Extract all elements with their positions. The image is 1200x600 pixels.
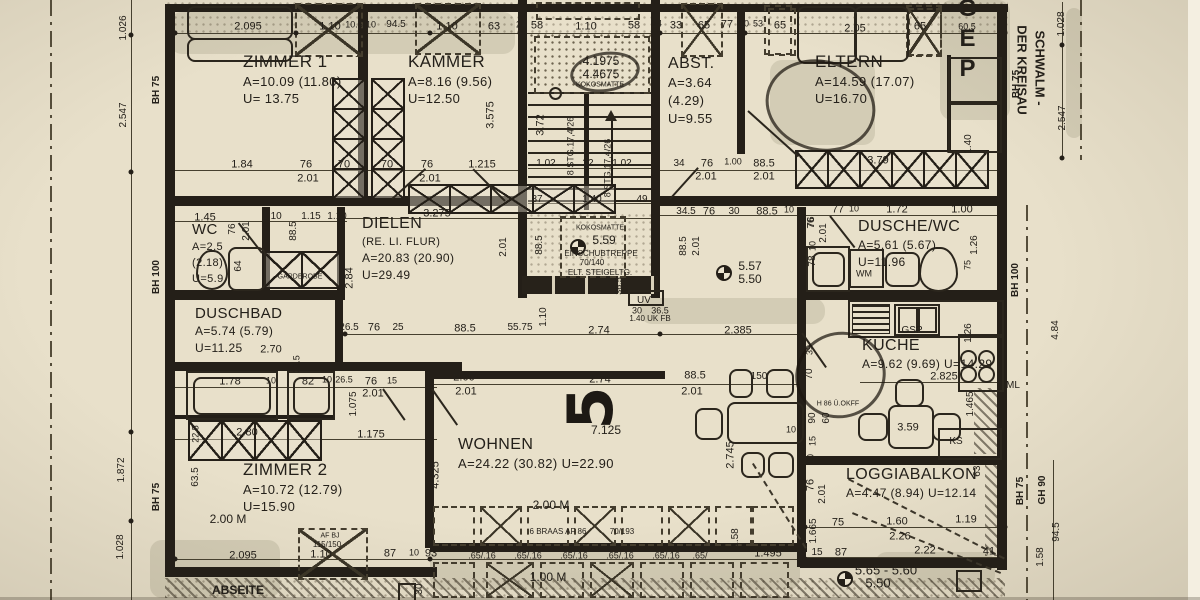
dimension-label: 1.10 [436,22,457,33]
dimension-label: 1.465 [966,391,976,416]
dimension-label: 30 [415,583,425,594]
room-area: A=5.74 (5.79) [195,325,282,339]
door-swing-line [431,388,458,425]
dimension-label: 10 [809,241,818,251]
dimension-label: 2.74 [588,326,609,337]
room-name: ZIMMER 1 [243,52,342,72]
dimension-node [1003,525,1008,530]
wall [165,362,462,371]
dimension-label: 2.01 [695,172,716,183]
annotation-label: GARDEROBE [278,274,323,281]
wardrobe-cell [334,170,364,198]
room-label: ZIMMER 2A=10.72 (12.79)U=15.90 [243,460,343,518]
dimension-label: 10 [366,21,376,30]
wardrobe-cell [265,253,303,287]
room-area: A=24.22 (30.82) U=22.90 [458,457,614,472]
fixture [895,379,924,407]
dimension-label: 2.01 [681,387,702,398]
dimension-label: 2.547 [119,102,129,127]
dimension-node [173,557,178,562]
dimension-label: BH 100 [1011,263,1021,297]
dimension-node [518,31,523,36]
dimension-label: .65/.16 [652,552,680,561]
boundary-line [50,0,52,600]
window-dashed [480,506,522,546]
dimension-label: 2.01 [499,237,509,256]
dimension-label: 63 [488,22,500,33]
level-label: 5.57 [738,260,761,272]
dimension-label: 2.74 [589,375,610,386]
fixture [852,304,890,334]
dimension-label: GH 90 [1038,476,1048,505]
fixture [727,402,804,444]
dimension-label: 53 [753,20,763,29]
room-name: DUSCHBAD [195,305,282,322]
room-name: WC [192,221,224,238]
dimension-label: 76 [701,159,713,170]
dimension-label: 1.872 [117,457,127,482]
wardrobe-crossbox [795,150,989,189]
room-area: (2.18) [192,257,224,270]
dimension-label: 150 [751,372,768,382]
dimension-label: 1.40 UK FB [629,315,670,323]
dimension-label: BH 75 [152,483,162,511]
dimension-label: 76 [703,207,715,218]
dimension-label: 1.78 [219,377,240,388]
dimension-label: 1.075 [349,391,359,416]
room-area: A=10.72 (12.79) [243,483,343,498]
dimension-label: 1.15 [301,212,320,222]
dimension-label: 88.5 [289,221,299,240]
dimension-label: 2.01 [819,223,829,242]
dimension-label: .65/.16 [606,552,634,561]
dimension-label: 1.10 [575,22,596,33]
dimension-label: 1.215 [468,160,496,171]
dimension-label: 10 [322,376,332,385]
dimension-label: 70 [338,160,350,171]
dimension-label: BH 75 [152,76,162,104]
dimension-label: 2.01 [419,174,440,185]
dimension-label: 76 [300,160,312,171]
dimension-label: 76 [806,479,817,491]
dimension-label: UV [637,296,651,306]
wardrobe-cell [893,152,925,187]
dimension-label: 88.5 [535,235,545,254]
room-area: U=11.96 [858,256,960,270]
dimension-label: 90 [808,412,818,423]
room-area: A=2.5 [192,241,224,254]
fixture [729,369,753,398]
dimension-label: 88.5 [679,236,689,255]
dimension-node [129,170,134,175]
window-dashed [433,562,475,598]
dimension-label: 3.79 [867,156,888,167]
dimension-label: BH 75 [1016,477,1026,505]
dimension-label: 4.325 [431,461,442,489]
dimension-label: 2.095 [234,22,262,33]
dimension-label: 65 [698,21,710,32]
wall [165,290,345,300]
dimension-label: 15 [387,377,397,386]
dimension-label: 10 [784,206,794,215]
room-area: (4.29) [668,94,714,109]
dimension-label: 1.72 [886,205,907,216]
annotation-label: ABSEITE [212,584,264,596]
dimension-label: BH 100 [152,260,162,294]
wardrobe-cell [451,186,492,212]
annotation-label: KS [949,437,962,447]
wardrobe-cell [829,152,861,187]
room-area: U=9.55 [668,112,714,127]
dimension-label: 1.00 [724,158,742,167]
dimension-label: 76 [368,323,380,334]
dimension-label: 8 STG.17,4/26 [604,139,613,198]
dimension-label: 87 [384,549,396,560]
window-dashed [536,2,640,20]
dimension-node [658,31,663,36]
dimension-label: 24 [516,21,526,30]
dimension-label: 34.5 [676,207,695,217]
wardrobe-cell [303,253,339,287]
dimension-label: 24 [652,20,662,29]
dimension-label: 1.10 [310,550,331,561]
wardrobe-cell [256,422,289,459]
dimension-label: 65 [914,22,926,33]
level-label: 5.50 [738,273,761,285]
dimension-label: 2.26 [889,532,910,543]
room-name: KAMMER [408,52,492,72]
dimension-label: 1.60 [886,517,907,528]
dimension-node [173,31,178,36]
room-area: U=5.9 [192,273,224,286]
room-label: WCA=2.5(2.18)U=5.9 [192,221,224,288]
annotation-label: 70/193 [610,528,634,536]
dimension-label: 76 [421,160,433,171]
level-mark-icon [716,265,732,281]
room-name: WOHNEN [458,436,614,454]
dimension-label: 1.19 [955,515,976,526]
dimension-label: 26.5 [339,323,358,333]
room-area: A=8.16 (9.56) [408,75,492,90]
wardrobe-crossbox [263,251,341,289]
room-label: DUSCHBADA=5.74 (5.79)U=11.25 [195,305,282,359]
dimension-label: 41 [983,547,995,558]
fixture [695,408,723,440]
dimension-label: 2.00 M [210,513,247,525]
annotation-label: ELT. STEIGELTG. [568,269,632,277]
dimension-label: 10.5 [345,21,363,30]
dimension-label: 88.5 [684,371,705,382]
dimension-label: 2.547 [1058,105,1068,130]
dimension-label: 2.01 [692,236,702,255]
window-dashed [668,506,710,546]
dimension-label: 1.00 M [530,571,567,583]
dimension-label: 2.05 [844,24,865,35]
window-dashed [433,506,475,546]
window-dashed [768,8,796,56]
window-dashed [486,562,534,598]
dimension-label: 2.00 M [533,499,570,511]
dimension-label: 2.01 [455,387,476,398]
door-swing-line [829,215,855,248]
wardrobe-cell [925,152,957,187]
dimension-label: 4.84 [1051,320,1061,339]
room-label: ABST.A=3.64(4.29)U=9.55 [668,55,714,130]
level-label: 5.59 [592,234,615,246]
dimension-label: 78 [808,255,818,266]
door-swing-line [382,388,405,420]
dimension-label: 30 [728,207,739,217]
dimension-label: 70 [381,160,393,171]
dimension-label: 10 [266,377,276,386]
dimension-label: 3.72 [536,114,547,135]
window-dashed [574,506,616,546]
room-name: KÜCHE [862,337,993,355]
dimension-node [743,31,748,36]
dimension-label: 2.01 [297,174,318,185]
wall [518,0,527,298]
dimension-label: .65/.16 [560,552,588,561]
dimension-label: 36.5 [293,355,302,373]
dimension-label: 26.5 [335,376,353,385]
window-dashed [527,506,569,546]
dimension-label: 75 [832,518,844,529]
boundary-line [1080,0,1082,160]
fixture [549,87,562,100]
fixture [858,413,888,441]
wall [651,0,660,298]
dimension-label: 8 STG.17,4/26 [567,117,576,176]
room-label: DUSCHE/WCA=5.61 (5.67)U=11.96 [858,218,960,273]
fixture [766,369,794,398]
fixture [956,570,982,592]
dimension-label: 49 [636,195,647,205]
stamp-text: SCHWALM - [1034,30,1047,105]
dimension-label: 7.125 [591,424,621,436]
dimension-label: 1.028 [116,534,126,559]
room-name: DUSCHE/WC [858,218,960,236]
dimension-label: 1.175 [357,430,385,441]
level-label: 5.50 [865,577,890,590]
annotation-label: KOKOSMATTE [576,225,624,232]
dimension-node [129,430,134,435]
dimension-label: 2.22 [914,546,935,557]
dimension-label: 2.385 [724,326,752,337]
dimension-label: 2.01 [753,172,774,183]
dimension-label: 37 [531,195,542,205]
annotation-label: 70/140 [580,259,604,267]
room-area: U=12.50 [408,92,492,107]
window-dashed [590,562,634,598]
level-mark-icon [837,571,853,587]
dimension-node [803,525,808,530]
window-dashed [640,562,684,598]
floorplan-photo: 5 2.0951.1010.51094.51.106324581.1058243… [0,0,1200,600]
fixture [938,428,1002,460]
fixture [768,452,794,478]
dimension-label: 1.58 [1036,547,1046,566]
room-area: A=20.83 (20.90) [362,252,454,266]
dimension-label: 77 [721,20,733,31]
room-area: A=5.61 (5.67) [858,239,960,253]
dimension-label: 10 [739,20,749,29]
dimension-label: 15 [809,436,818,446]
floorplan-drawing: 5 2.0951.1010.51094.51.106324581.1058243… [0,0,1200,600]
dimension-label: 2.095 [229,551,257,562]
annotation-label: AF BJ [320,533,339,540]
wardrobe-cell [797,152,829,187]
room-name: ZIMMER 2 [243,460,343,480]
room-area: U=29.49 [362,269,454,283]
dimension-node [803,557,808,562]
dimension-label: 34 [673,159,684,169]
dimension-label: 1.40 [582,195,601,205]
dimension-label: 1.58 [731,528,741,547]
dimension-label: 58 [628,21,640,32]
dimension-label: 82 [302,377,314,388]
dimension-label: 65 [774,21,786,32]
dimension-label: 1.10 [262,212,281,222]
dimension-label: 2.745 [726,441,737,469]
wardrobe-cell [373,110,403,140]
room-area: U= 13.75 [243,92,342,107]
dimension-node [129,519,134,524]
dimension-label: 1.026 [119,15,129,40]
room-name: LOGGIABALKON [846,466,977,484]
dimension-label: 1.028 [1057,11,1067,36]
dimension-label: 76 [228,223,238,234]
dimension-label: 1.26 [970,235,980,254]
boundary-line [1026,205,1028,600]
wardrobe-cell [289,422,320,459]
dimension-label: 1.10 [319,22,340,33]
dimension-node [428,31,433,36]
room-area: A=3.64 [668,76,714,91]
dimension-label: 25 [392,323,403,333]
dimension-label: 36.5 [615,277,624,295]
room-area: U=15.90 [243,500,343,515]
dimension-node [1060,156,1065,161]
dimension-label: 10 [409,549,419,558]
wardrobe-cell [334,110,364,140]
dimension-label: 2.01 [818,484,828,503]
room-label: ZIMMER 1A=10.09 (11.80)U= 13.75 [243,52,342,110]
dimension-label: 1.495 [754,549,782,560]
dimension-label: 22 [582,159,593,169]
dimension-label: 2.01 [242,221,252,240]
dimension-label: 1.10 [539,307,549,326]
room-name: ABST. [668,55,714,73]
dimension-label: 88.5 [454,324,475,335]
stamp-text: DER KREISAU [1016,25,1029,115]
room-label: WOHNENA=24.22 (30.82) U=22.90 [458,436,614,475]
dimension-label: 94.5 [1052,522,1062,541]
room-area: U=11.25 [195,342,282,356]
dimension-label: .65/.16 [514,552,542,561]
dimension-label: 77 [832,205,844,216]
dimension-label: 10 [807,454,816,464]
room-label: DIELEN(RE. LI. FLUR)A=20.83 (20.90)U=29.… [362,215,454,286]
annotation-label: GSP [901,326,922,336]
dimension-label: 1.10 [327,212,346,222]
dimension-label: 1.02 [612,159,631,169]
dimension-label: 76 [365,377,377,388]
dimension-node [658,332,663,337]
dimension-label: 88.5 [753,159,774,170]
room-name: DIELEN [362,215,454,233]
dimension-label: 1.84 [231,160,252,171]
wardrobe-cell [492,186,533,212]
dimension-label: 63.5 [191,467,201,486]
dimension-label: 3.59 [897,423,918,434]
dimension-label: 2.80 [236,428,257,439]
room-area: A=4.47 (8.94) U=12.14 [846,487,977,501]
stamp-text: GEP [955,0,979,85]
wardrobe-crossbox [371,78,405,200]
dimension-node [360,31,365,36]
window-dashed [690,562,734,598]
dimension-label: 2.01 [362,389,383,400]
dimension-label: 64 [234,260,244,271]
annotation-label: ML [1006,381,1020,391]
dimension-label: .65/ [692,552,707,561]
dimension-label: 94.5 [386,20,405,30]
room-area: (RE. LI. FLUR) [362,236,454,249]
dimension-label: 1.40 [964,134,974,153]
window-dashed [621,506,663,546]
dimension-node [129,33,134,38]
window-dashed [740,562,789,598]
dimension-label: 15 [811,548,822,558]
dimension-line [131,0,132,600]
dimension-label: 2.84 [345,267,356,288]
dimension-node [1060,43,1065,48]
dimension-label: 88.5 [756,207,777,218]
room-label: LOGGIABALKONA=4.47 (8.94) U=12.14 [846,466,977,504]
dimension-label: 22.5 [192,425,201,443]
annotation-label: 115/150 [313,541,341,549]
dimension-node [294,31,299,36]
dimension-label: .65/.16 [468,552,496,561]
dimension-label: 55.75 [507,323,532,333]
photo-edge [1188,0,1200,600]
wardrobe-cell [373,80,403,110]
dimension-label: 10 [786,426,796,435]
dimension-label: 76 [807,216,817,227]
annotation-label: 6 BRAAS AF 86 [530,528,587,536]
dimension-label: 75 [964,260,973,270]
room-label: KAMMERA=8.16 (9.56)U=12.50 [408,52,492,110]
dimension-label: 58 [531,21,543,32]
dimension-label: 1.00 [951,205,972,216]
fixture [948,103,1002,153]
dimension-label: 1.02 [536,159,555,169]
dimension-label: 87 [835,548,847,559]
wardrobe-cell [957,152,987,187]
dimension-label: 10 [849,205,859,214]
dimension-node [1003,31,1008,36]
annotation-label: EINSCHUBTREPPE [564,250,637,258]
dimension-label: 33 [670,21,682,32]
room-area: A=10.09 (11.80) [243,75,342,90]
dimension-label: 1.665 [809,518,819,543]
dimension-label: 93 [425,549,437,560]
stair-direction-arrow [605,110,617,121]
dimension-label: 2.00 [453,373,474,384]
